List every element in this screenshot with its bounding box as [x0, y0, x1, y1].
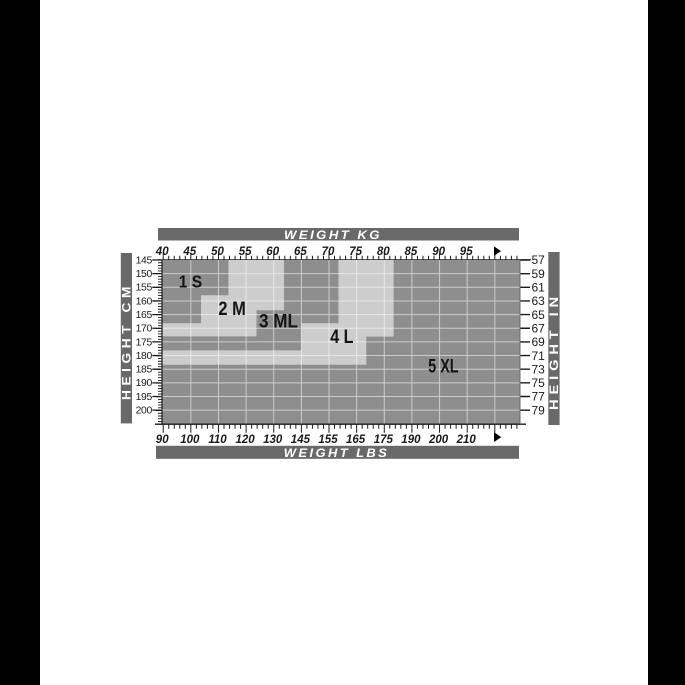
svg-text:63: 63	[532, 294, 546, 308]
svg-text:2 M: 2 M	[218, 299, 245, 320]
svg-text:57: 57	[532, 253, 546, 267]
svg-text:90: 90	[156, 434, 169, 446]
svg-text:79: 79	[532, 403, 546, 417]
svg-text:4 L: 4 L	[330, 326, 353, 348]
svg-text:5 XL: 5 XL	[428, 357, 458, 378]
svg-text:77: 77	[532, 390, 546, 404]
svg-text:195: 195	[136, 392, 153, 403]
svg-text:170: 170	[136, 324, 153, 335]
svg-text:71: 71	[532, 349, 546, 363]
svg-text:150: 150	[136, 269, 153, 280]
svg-text:59: 59	[532, 267, 546, 281]
svg-text:145: 145	[136, 255, 153, 266]
svg-text:160: 160	[136, 296, 153, 307]
svg-text:61: 61	[532, 281, 546, 295]
svg-text:155: 155	[318, 434, 338, 446]
svg-text:175: 175	[374, 434, 394, 446]
svg-text:WEIGHT KG: WEIGHT KG	[284, 228, 382, 242]
svg-text:200: 200	[428, 434, 449, 446]
svg-text:WEIGHT LBS: WEIGHT LBS	[284, 446, 390, 460]
svg-text:190: 190	[401, 434, 421, 446]
svg-text:40: 40	[155, 246, 169, 258]
svg-text:HEIGHT CM: HEIGHT CM	[119, 282, 133, 400]
svg-text:75: 75	[532, 376, 546, 390]
svg-text:1 S: 1 S	[179, 272, 202, 292]
svg-text:110: 110	[208, 434, 227, 446]
svg-text:180: 180	[136, 351, 153, 362]
svg-text:69: 69	[532, 335, 546, 349]
svg-text:3 ML: 3 ML	[259, 311, 298, 333]
svg-text:185: 185	[136, 365, 153, 376]
svg-text:67: 67	[532, 321, 546, 335]
svg-text:100: 100	[180, 434, 200, 446]
svg-text:200: 200	[136, 406, 153, 417]
svg-text:HEIGHT IN: HEIGHT IN	[547, 292, 561, 410]
svg-text:45: 45	[182, 246, 196, 258]
svg-text:175: 175	[136, 337, 153, 348]
svg-text:73: 73	[532, 362, 546, 376]
svg-text:190: 190	[136, 378, 153, 389]
svg-text:120: 120	[236, 434, 256, 446]
svg-text:130: 130	[263, 434, 283, 446]
svg-text:165: 165	[136, 310, 153, 321]
svg-text:165: 165	[346, 434, 366, 446]
svg-text:65: 65	[532, 308, 546, 322]
svg-text:210: 210	[456, 434, 477, 446]
svg-text:145: 145	[291, 434, 311, 446]
svg-text:155: 155	[136, 283, 153, 294]
